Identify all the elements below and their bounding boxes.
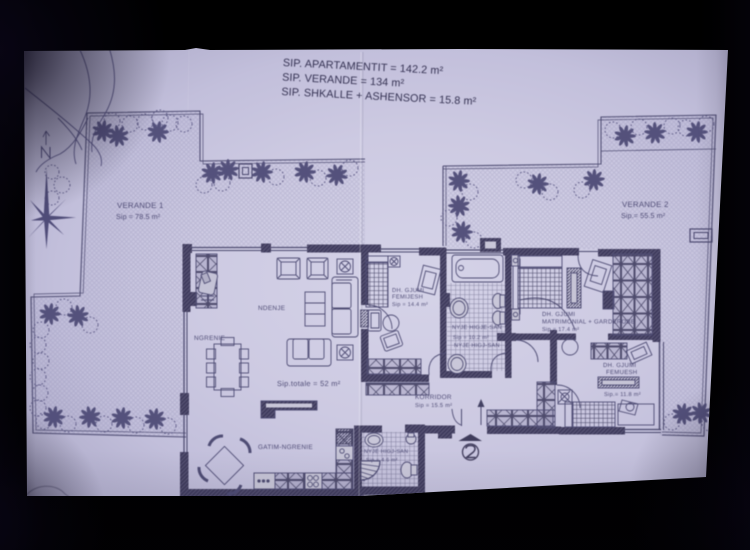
svg-text:NDENJE: NDENJE [258,305,285,312]
svg-text:Sip = 17.4 m²: Sip = 17.4 m² [542,326,579,333]
svg-text:NGRENIE: NGRENIE [194,335,225,342]
svg-text:Sip = 10.2 m²: Sip = 10.2 m² [453,335,489,341]
svg-text:DH. GJUMI: DH. GJUMI [392,287,424,294]
svg-text:VERANDE 2: VERANDE 2 [622,200,669,209]
svg-text:Sip = 4.6 m²: Sip = 4.6 m² [366,458,398,464]
svg-text:Sip = 14.4 m²: Sip = 14.4 m² [392,302,428,308]
svg-text:MATRIMONIAL + GARDEROBE: MATRIMONIAL + GARDEROBE [542,319,635,326]
svg-text:Sip = 15.5 m²: Sip = 15.5 m² [415,402,452,409]
svg-text:DH. GJUMI: DH. GJUMI [603,362,636,369]
svg-text:NYJE HIGJ-SAN: NYJE HIGJ-SAN [364,449,408,455]
svg-text:GATIM-NGRENIE: GATIM-NGRENIE [258,444,313,451]
svg-text:KORRIDOR: KORRIDOR [415,394,452,401]
svg-text:Sip.= 11.8 m²: Sip.= 11.8 m² [604,391,641,398]
svg-text:Sip.totale = 52 m²: Sip.totale = 52 m² [277,379,341,388]
svg-text:NYJE HIGJE-SAN: NYJE HIGJE-SAN [452,325,502,331]
svg-text:Sip = 78.5 m²: Sip = 78.5 m² [116,212,161,221]
svg-text:SIP. SHKALLE + ASHENSOR = 15.: SIP. SHKALLE + ASHENSOR = 15.8 m² [281,86,477,108]
svg-text:FEMIJESH: FEMIJESH [392,294,423,301]
svg-text:Sip.= 55.5 m²: Sip.= 55.5 m² [621,211,666,220]
svg-text:NYJE HIGJ-SAN: NYJE HIGJ-SAN [454,343,500,349]
svg-text:DH. GJUMI: DH. GJUMI [542,311,575,318]
svg-text:FEMUESH: FEMUESH [606,369,637,376]
svg-text:VERANDE 1: VERANDE 1 [117,201,164,210]
